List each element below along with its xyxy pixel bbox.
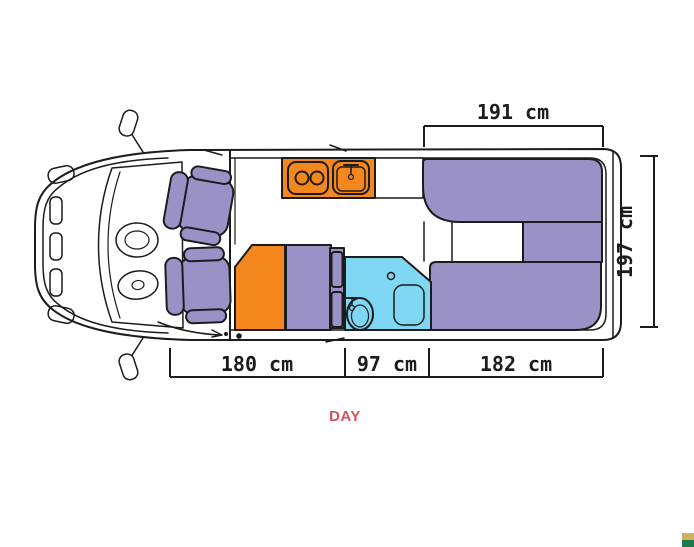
mirror-top-icon bbox=[117, 108, 143, 152]
sink-icon bbox=[333, 161, 369, 194]
floorplan-canvas: 191 cm 197 cm 180 cm 97 cm 182 cm DAY bbox=[0, 0, 694, 547]
wardrobe bbox=[286, 245, 344, 330]
dimension-bathroom-label: 97 cm bbox=[357, 352, 417, 376]
kitchen-unit bbox=[282, 158, 423, 198]
door-mark-dot bbox=[236, 333, 242, 339]
dimension-bottom: 180 cm 97 cm 182 cm bbox=[170, 348, 603, 377]
dimension-top: 191 cm bbox=[424, 100, 603, 147]
logo-fragment bbox=[682, 533, 694, 547]
rear-bed-top bbox=[423, 159, 602, 222]
counter-wedge bbox=[235, 245, 285, 330]
door-mark-dot bbox=[224, 332, 228, 336]
rear-bed-bottom bbox=[430, 262, 601, 330]
driver-seat bbox=[165, 247, 232, 324]
side-seat-middle bbox=[523, 222, 602, 262]
wardrobe-door-panel bbox=[332, 292, 343, 327]
dimension-front-label: 180 cm bbox=[221, 352, 293, 376]
counter-extension bbox=[375, 158, 423, 198]
camper-floorplan-diagram: 191 cm 197 cm 180 cm 97 cm 182 cm DAY bbox=[0, 0, 694, 547]
wardrobe-door-panel bbox=[332, 252, 343, 287]
dimension-top-label: 191 cm bbox=[477, 100, 549, 124]
day-mode-label: DAY bbox=[329, 408, 361, 425]
dimension-rear-label: 182 cm bbox=[480, 352, 552, 376]
mirror-bottom-icon bbox=[117, 338, 143, 382]
dimension-right-label: 197 cm bbox=[613, 206, 637, 278]
stove-icon bbox=[288, 162, 328, 194]
